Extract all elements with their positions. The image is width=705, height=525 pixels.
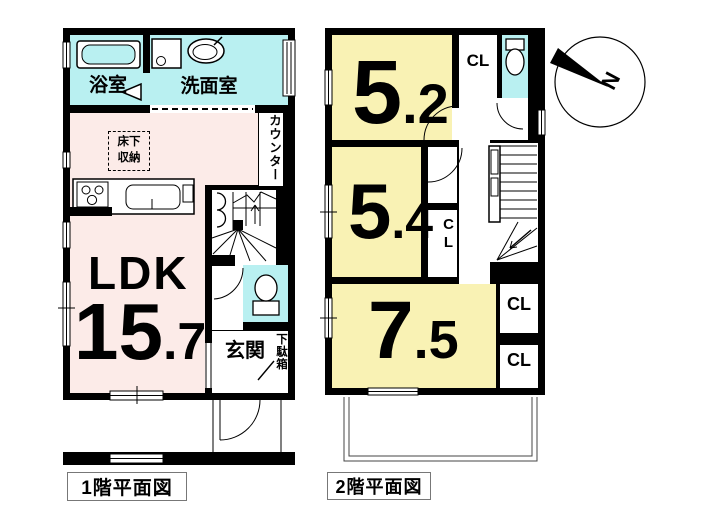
label-room-5-2: 5 .2 bbox=[352, 48, 449, 138]
washing-machine-icon bbox=[152, 39, 181, 68]
label-room-7-5: 7 .5 bbox=[368, 290, 459, 372]
porch bbox=[63, 400, 295, 465]
caption-floor2: 2階平面図 bbox=[327, 472, 431, 500]
door-arc-room-5-4 bbox=[428, 148, 462, 182]
room-5-4-int: 5 bbox=[348, 172, 391, 250]
label-closet-top: CL bbox=[458, 50, 498, 70]
ldk-area-dec: .7 bbox=[163, 316, 206, 368]
label-counter: カウンター bbox=[260, 114, 280, 184]
entry-door-arc bbox=[220, 400, 260, 440]
room-5-2-dec: .2 bbox=[402, 76, 449, 132]
label-closet-right-upper: CL bbox=[500, 294, 538, 314]
label-closet-mid: CL bbox=[432, 216, 456, 274]
room-7-5-dec: .5 bbox=[414, 313, 459, 367]
kitchen-counter-icon bbox=[70, 179, 194, 216]
label-shoe-cabinet: 下駄箱 bbox=[268, 333, 286, 377]
bathtub-icon bbox=[77, 41, 140, 68]
room-7-5-int: 7 bbox=[368, 290, 414, 372]
dashed-boundary bbox=[150, 105, 255, 113]
floorplan-canvas: 浴室 洗面室 カウンター 床下 収納 LDK 15 .7 玄関 下駄箱 5 .2… bbox=[0, 0, 705, 525]
label-ldk-area: 15 .7 bbox=[74, 292, 206, 372]
toilet-door-arc-f1 bbox=[214, 268, 243, 299]
label-underfloor-1: 床下 bbox=[118, 135, 141, 151]
stairs-f2 bbox=[489, 146, 537, 260]
label-entrance: 玄関 bbox=[216, 338, 274, 364]
ldk-area-int: 15 bbox=[74, 292, 163, 372]
balcony-outline bbox=[344, 397, 537, 461]
room-5-4-dec: .4 bbox=[391, 196, 433, 246]
toilet-icon-f2 bbox=[506, 39, 524, 75]
caption-floor1: 1階平面図 bbox=[67, 472, 187, 501]
label-room-5-4: 5 .4 bbox=[348, 172, 433, 250]
underfloor-storage-box: 床下 収納 bbox=[108, 131, 150, 171]
stairs-f1 bbox=[212, 192, 276, 266]
washbasin-icon bbox=[188, 37, 224, 63]
room-5-2-int: 5 bbox=[352, 48, 402, 138]
label-underfloor-2: 収納 bbox=[118, 151, 141, 167]
toilet-icon-f1 bbox=[253, 275, 279, 315]
label-washroom: 洗面室 bbox=[166, 73, 252, 99]
door-arc-toilet-f2 bbox=[497, 103, 523, 129]
label-closet-right-lower: CL bbox=[500, 350, 538, 370]
label-bath: 浴室 bbox=[80, 72, 136, 98]
